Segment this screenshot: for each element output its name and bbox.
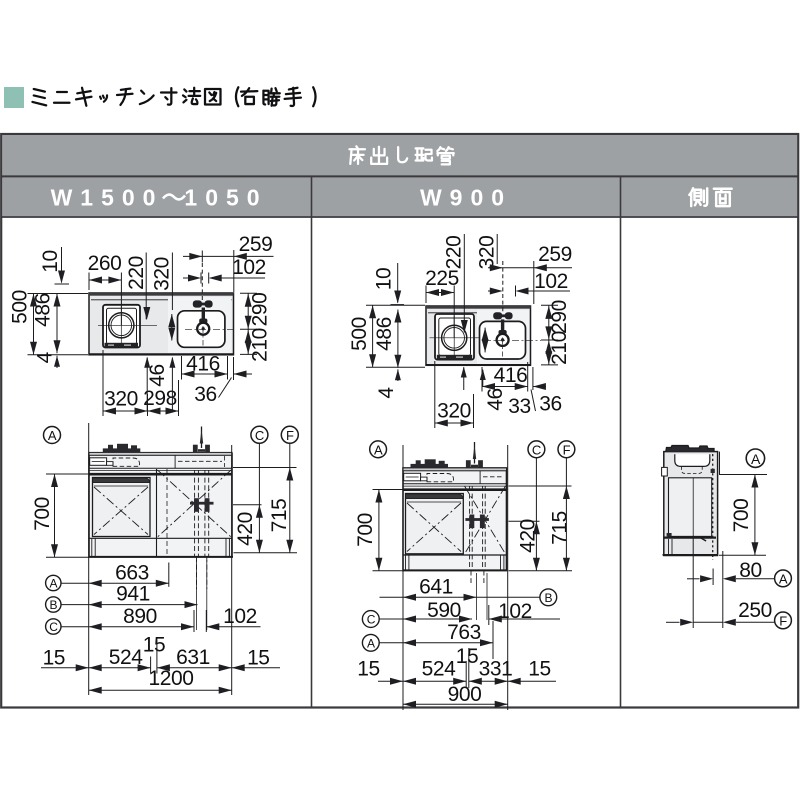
svg-text:C: C xyxy=(49,620,58,634)
svg-text:A: A xyxy=(50,577,58,591)
svg-text:15: 15 xyxy=(528,658,550,681)
svg-text:W900: W900 xyxy=(420,185,512,211)
svg-text:225: 225 xyxy=(425,267,459,290)
svg-text:486: 486 xyxy=(373,317,396,351)
svg-text:700: 700 xyxy=(31,497,54,531)
svg-text:941: 941 xyxy=(116,583,150,606)
svg-text:320: 320 xyxy=(104,388,138,411)
svg-text:A: A xyxy=(751,451,761,467)
svg-text:102: 102 xyxy=(534,270,568,293)
svg-text:320: 320 xyxy=(151,257,174,291)
svg-text:290: 290 xyxy=(248,293,271,327)
svg-text:210: 210 xyxy=(248,328,271,362)
svg-text:700: 700 xyxy=(354,513,377,547)
svg-text:220: 220 xyxy=(442,236,465,270)
svg-text:715: 715 xyxy=(268,499,291,533)
svg-text:102: 102 xyxy=(498,600,532,623)
svg-text:1200: 1200 xyxy=(149,667,194,690)
svg-text:486: 486 xyxy=(32,293,55,327)
svg-text:10: 10 xyxy=(373,268,396,290)
svg-text:4: 4 xyxy=(375,387,398,399)
svg-text:33: 33 xyxy=(508,395,530,418)
svg-text:220: 220 xyxy=(125,256,148,290)
svg-text:A: A xyxy=(779,572,788,587)
svg-text:900: 900 xyxy=(448,683,482,706)
svg-text:641: 641 xyxy=(419,576,453,599)
svg-text:1050: 1050 xyxy=(184,185,267,211)
svg-text:15: 15 xyxy=(43,647,65,670)
svg-text:210: 210 xyxy=(548,331,571,365)
svg-text:250: 250 xyxy=(738,599,772,622)
svg-text:715: 715 xyxy=(549,511,572,545)
svg-text:102: 102 xyxy=(232,256,266,279)
svg-text:46: 46 xyxy=(484,388,507,410)
svg-text:A: A xyxy=(374,442,383,457)
svg-text:298: 298 xyxy=(143,387,177,410)
svg-text:416: 416 xyxy=(494,364,528,387)
svg-text:320: 320 xyxy=(437,400,471,423)
svg-text:260: 260 xyxy=(88,252,122,275)
svg-text:331: 331 xyxy=(479,658,513,681)
svg-text:B: B xyxy=(545,591,553,605)
svg-text:500: 500 xyxy=(9,290,32,324)
svg-text:15: 15 xyxy=(357,658,379,681)
svg-text:F: F xyxy=(563,442,571,457)
svg-text:890: 890 xyxy=(123,605,157,628)
svg-text:663: 663 xyxy=(115,561,149,584)
svg-text:500: 500 xyxy=(348,317,371,351)
svg-text:15: 15 xyxy=(456,645,478,668)
svg-text:C: C xyxy=(255,428,264,443)
svg-text:C: C xyxy=(367,613,376,627)
svg-text:4: 4 xyxy=(34,351,57,363)
svg-text:763: 763 xyxy=(447,621,481,644)
svg-text:259: 259 xyxy=(538,243,572,266)
svg-text:10: 10 xyxy=(39,250,62,272)
svg-text:F: F xyxy=(779,614,787,629)
svg-text:A: A xyxy=(48,428,57,443)
svg-text:259: 259 xyxy=(239,233,273,256)
svg-text:36: 36 xyxy=(539,393,561,416)
svg-text:700: 700 xyxy=(730,499,753,533)
svg-text:A: A xyxy=(367,636,375,650)
svg-text:C: C xyxy=(532,442,541,457)
svg-text:102: 102 xyxy=(223,605,257,628)
svg-text:F: F xyxy=(286,428,294,443)
svg-text:W1500: W1500 xyxy=(51,185,164,211)
svg-text:631: 631 xyxy=(176,646,210,669)
svg-text:B: B xyxy=(50,598,58,612)
svg-text:15: 15 xyxy=(247,647,269,670)
svg-text:524: 524 xyxy=(422,658,456,681)
svg-text:420: 420 xyxy=(234,512,257,546)
svg-text:36: 36 xyxy=(194,383,216,406)
svg-text:320: 320 xyxy=(476,236,499,270)
svg-text:15: 15 xyxy=(143,634,165,657)
